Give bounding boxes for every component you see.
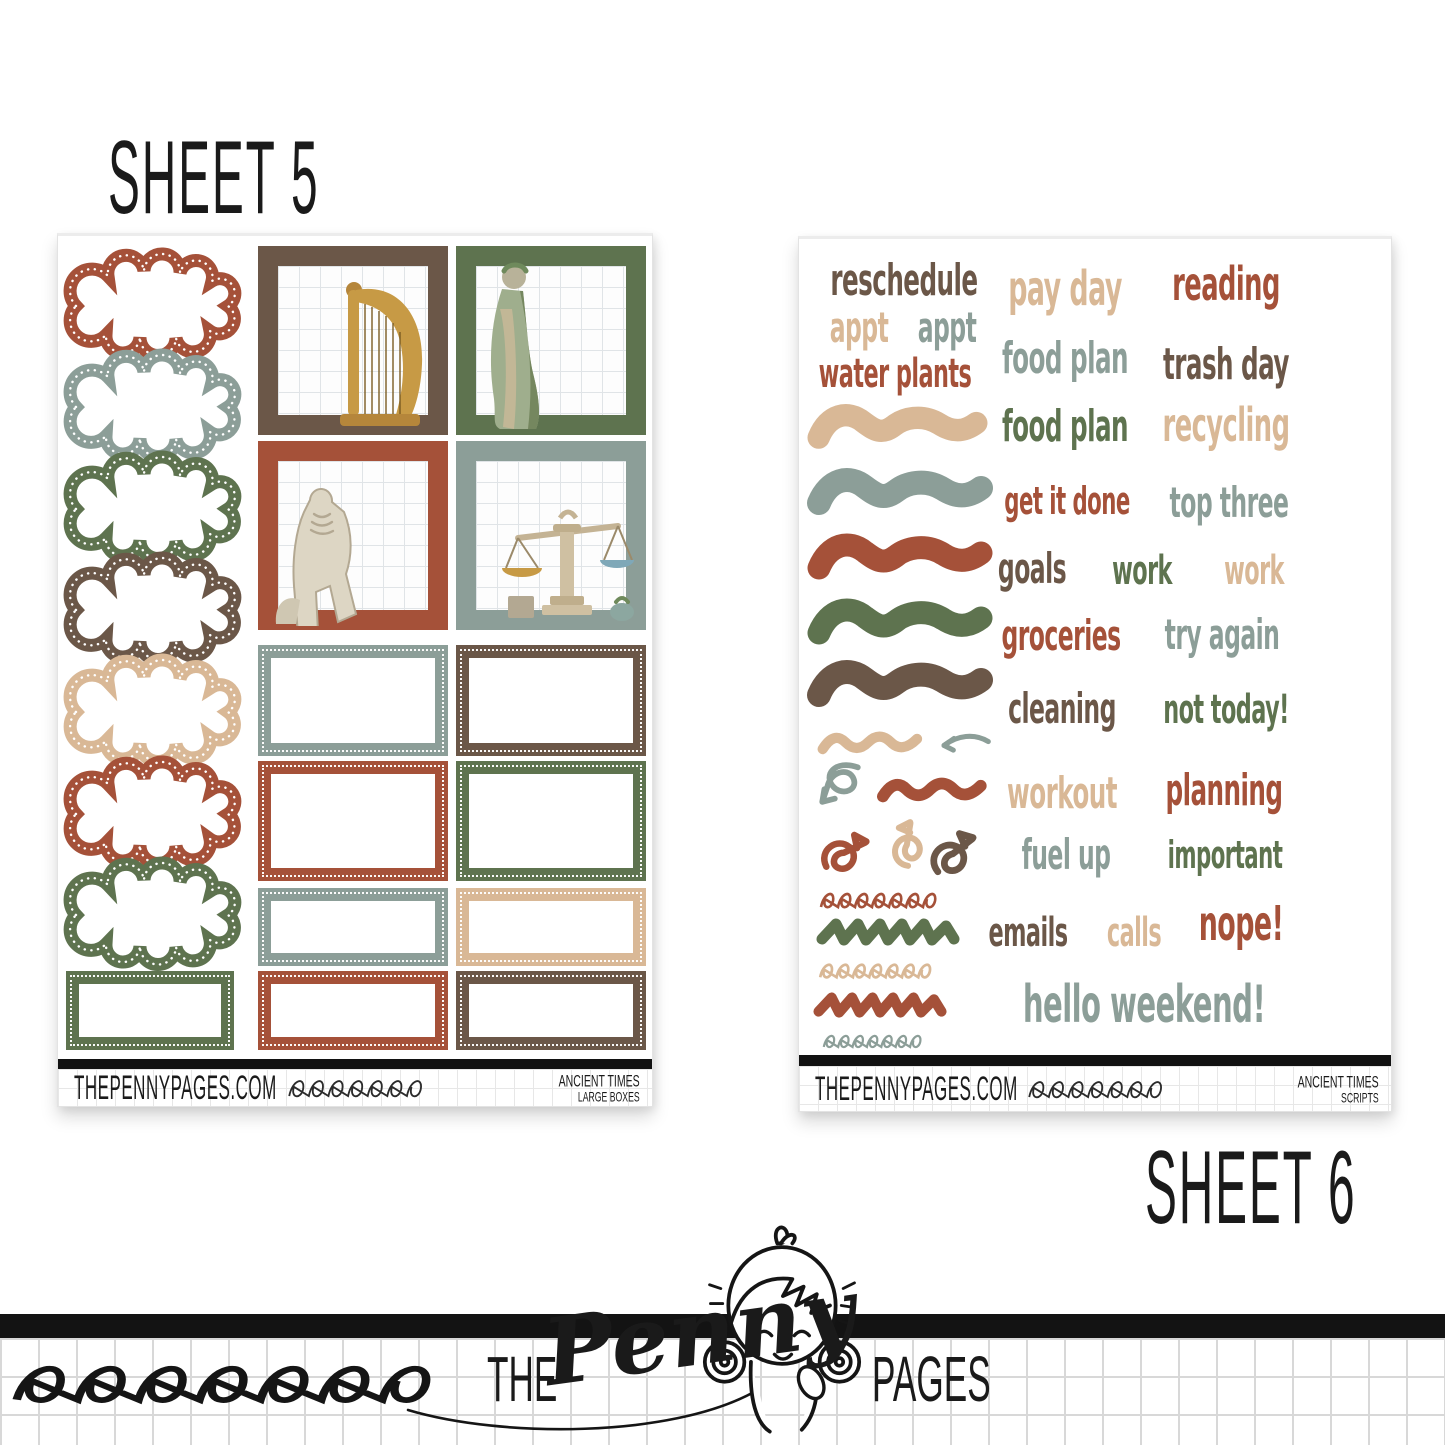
sheet-type: LARGE BOXES (559, 1089, 640, 1103)
quarter-box-sticker (66, 971, 234, 1050)
cloud-label-sticker (64, 762, 240, 862)
script-word-sticker: top three (1123, 482, 1335, 524)
script-word-sticker: emails (957, 913, 1098, 953)
brush-stroke-icon (807, 461, 992, 517)
quarter-box-sticker (456, 971, 646, 1050)
brush-stroke-icon (807, 593, 992, 645)
loop-line-icon (811, 1030, 933, 1052)
script-word-sticker: nope! (1166, 900, 1317, 948)
zeus-statue-illustration (266, 474, 370, 626)
script-word-sticker: not today! (1114, 690, 1338, 730)
script-word-sticker: fuel up (987, 834, 1146, 876)
cloud-label-sticker (64, 863, 240, 963)
sheet6-label-text: SHEET 6 (1145, 1136, 1356, 1240)
logo-word-pages: PAGES (872, 1343, 1088, 1417)
brush-stroke-icon (807, 528, 992, 580)
sheet6-label: SHEET 6 (1145, 1126, 1445, 1248)
full-box-sticker-zeus (258, 441, 448, 630)
loop-doodle-icon (1020, 1074, 1170, 1104)
cloud-label-sticker (64, 254, 240, 354)
cloud-label-sticker (64, 660, 240, 760)
sticker-sheet-5: THEPENNYPAGES.COM ANCIENT TIMES LARGE BO… (57, 233, 653, 1107)
curve-arrow-left-icon (937, 729, 993, 751)
sticker-sheet-6: reschedule pay day reading appt appt wat… (798, 236, 1392, 1112)
collection-name: ANCIENT TIMES (1298, 1073, 1379, 1090)
full-box-sticker-scales (456, 441, 646, 630)
goddess-statue-illustration (470, 259, 562, 431)
quarter-box-sticker (456, 888, 646, 966)
loop-line-icon (811, 887, 945, 913)
half-box-sticker (456, 645, 646, 756)
script-word-sticker: reading (1130, 261, 1322, 307)
cloud-label-sticker (64, 355, 240, 455)
full-box-sticker-harp (258, 246, 448, 435)
harp-illustration (332, 274, 432, 429)
cloud-label-sticker (64, 558, 240, 658)
loop-line-icon (811, 958, 939, 983)
script-word-sticker: hello weekend! (928, 979, 1361, 1031)
sheet5-label: SHEET 5 (108, 116, 568, 238)
sheet-type: SCRIPTS (1298, 1090, 1379, 1104)
squiggle-icon (817, 725, 925, 755)
collection-name: ANCIENT TIMES (559, 1072, 640, 1089)
half-box-sticker (258, 645, 448, 756)
cloud-label-sticker (64, 457, 240, 557)
script-word-sticker: try again (1120, 614, 1325, 656)
sheet6-footer-bar (799, 1055, 1391, 1066)
script-word-sticker: planning (1120, 769, 1329, 813)
zigzag-icon (813, 988, 947, 1022)
script-word-sticker: recycling (1113, 402, 1340, 448)
product-image: SHEET 5 (0, 0, 1445, 1445)
loop-arrow-icon (813, 759, 865, 807)
curl-arrow-icon (817, 823, 871, 875)
sheet5-label-text: SHEET 5 (108, 126, 319, 230)
sheet5-footer: THEPENNYPAGES.COM ANCIENT TIMES LARGE BO… (58, 1069, 652, 1106)
loop-doodle-icon (280, 1073, 430, 1103)
zigzag-icon (813, 915, 963, 949)
script-word-sticker: work (1201, 551, 1308, 591)
script-word-sticker: trash day (1114, 343, 1339, 387)
script-word-sticker: important (1123, 836, 1328, 874)
curl-arrow-icon (919, 820, 984, 881)
quarter-box-sticker (258, 888, 448, 966)
brush-stroke-icon (807, 654, 992, 708)
squiggle-icon (877, 771, 989, 803)
sheet6-credit: ANCIENT TIMES SCRIPTS (1248, 1073, 1379, 1104)
sheet6-footer: THEPENNYPAGES.COM ANCIENT TIMES SCRIPTS (799, 1066, 1391, 1111)
quarter-box-sticker (258, 971, 448, 1050)
loop-doodle-icon (6, 1352, 436, 1414)
sheet5-credit: ANCIENT TIMES LARGE BOXES (509, 1072, 640, 1103)
full-box-sticker-goddess (456, 246, 646, 435)
half-box-sticker (456, 761, 646, 881)
half-box-sticker (258, 761, 448, 881)
brush-stroke-icon (807, 397, 987, 451)
script-word-sticker: work (1089, 551, 1196, 591)
scales-of-justice-illustration (498, 484, 638, 624)
